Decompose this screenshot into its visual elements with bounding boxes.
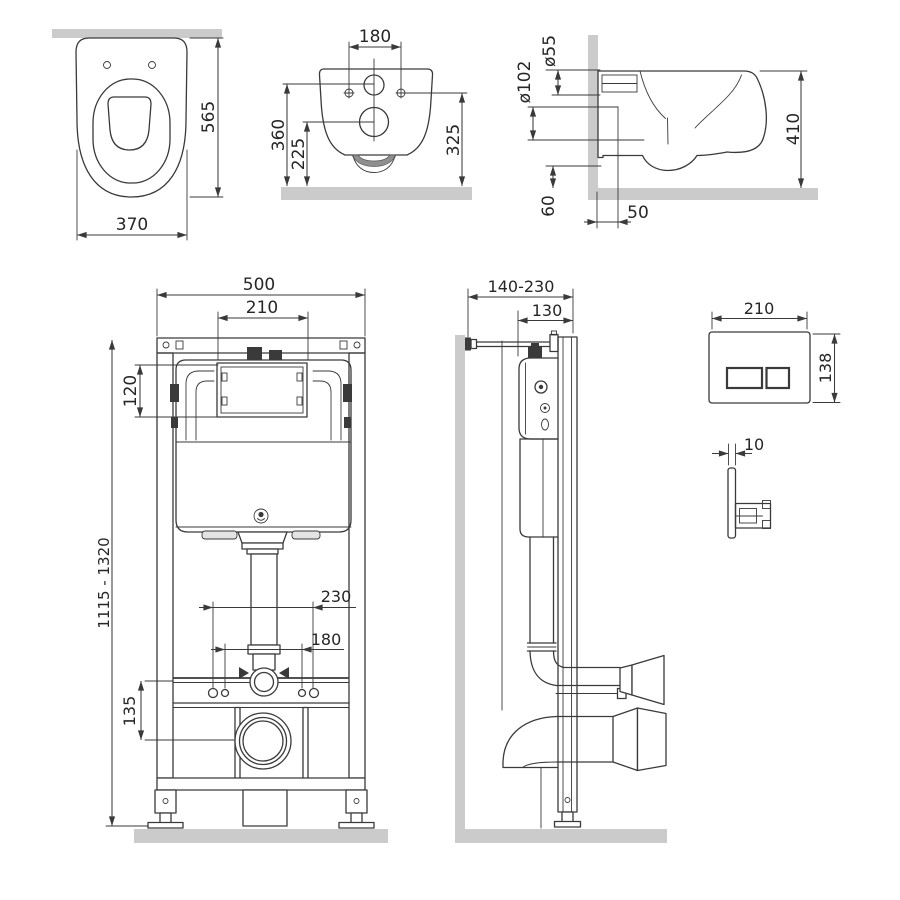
dim-frame-width: 500 [243, 275, 275, 295]
dim-toilet-width: 370 [116, 215, 148, 235]
drain-duct [243, 790, 287, 826]
flush-plate-side-view: 10 [712, 435, 771, 538]
access-window [217, 363, 307, 417]
anchor-bolt-hole [310, 689, 319, 698]
toilet-seat-ring [93, 79, 170, 183]
frame-leg [155, 790, 176, 813]
toilet-bottom-outline [319, 69, 432, 155]
seat-bolt-hole [104, 62, 111, 69]
dim-bolt-spacing: 180 [359, 27, 391, 47]
flush-valve-knob [269, 350, 282, 360]
seat-bolt-hole [149, 62, 156, 69]
flush-connector-cone [620, 665, 632, 695]
flush-plate-front-view: 210 138 [709, 299, 840, 403]
dim-outlet-center: 225 [289, 138, 309, 170]
toilet-side-view: ø55 ø102 410 60 50 [515, 35, 818, 228]
bowl-inner-curve [640, 71, 666, 119]
cistern-profile [519, 358, 558, 439]
floor-band [134, 829, 388, 843]
dim-window-height: 120 [121, 375, 141, 407]
dim-toilet-depth: 410 [784, 113, 804, 145]
filling-valve-knob [247, 347, 262, 360]
dim-plate-thickness: 10 [744, 435, 764, 454]
dim-wall-offset-range: 140-230 [488, 277, 555, 296]
valve-knob [528, 347, 542, 358]
drawing-canvas: 565 370 180 360 225 325 [0, 0, 900, 900]
dim-underside-height: 60 [539, 195, 559, 217]
frame-side-view: 140-230 130 [455, 277, 667, 843]
toilet-top-view: 565 370 [52, 29, 223, 240]
wall-band [588, 35, 598, 188]
frame-rail-profile [558, 337, 577, 812]
dim-bolt-height: 325 [444, 124, 464, 156]
wall-band [52, 29, 222, 38]
dim-inlet-diameter: ø55 [540, 35, 560, 67]
side-bracket [343, 384, 352, 402]
outlet-spigot-band [352, 155, 396, 167]
frame-bottom-bar [157, 778, 365, 790]
frame-front-view: 500 210 120 1115 - 1320 230 180 135 [95, 275, 388, 843]
hanger-hole [354, 342, 360, 348]
plate-profile [728, 468, 736, 538]
dim-toilet-height: 565 [199, 101, 219, 133]
dim-plate-width: 210 [744, 299, 775, 318]
anchor-bolt-hole [209, 689, 218, 698]
dim-outlet-to-wall: 50 [627, 203, 649, 223]
flush-bend-funnel [238, 532, 287, 543]
anchor-bolt-hole [222, 690, 229, 697]
floor-band [281, 187, 472, 200]
hanger-hole [163, 342, 169, 348]
waste-elbow [503, 717, 557, 768]
frame-leg [346, 790, 367, 813]
bowl-inner-curve [695, 75, 742, 128]
technical-drawing-sheet: 565 370 180 360 225 325 [0, 0, 900, 900]
anchor-bolt-hole [299, 690, 306, 697]
dim-outlet-drop: 135 [120, 696, 139, 727]
dim-anchor-spacing-inner: 180 [311, 630, 342, 649]
dim-window-width: 210 [246, 298, 278, 318]
toilet-bottom-view: 180 360 225 325 [269, 27, 472, 200]
toilet-bowl-opening [108, 97, 151, 150]
tank-lower-profile [520, 439, 558, 537]
floor-band [588, 188, 818, 200]
flush-button-large [727, 368, 762, 388]
dim-frame-depth: 130 [532, 301, 563, 320]
wall-band [455, 335, 465, 829]
flush-pipe [251, 554, 277, 645]
wall-anchor [465, 338, 471, 351]
dim-anchor-spacing-outer: 230 [321, 587, 352, 606]
side-bracket [170, 384, 179, 402]
dim-inlet-center: 360 [269, 119, 289, 151]
floor-band [455, 829, 667, 843]
waste-connector-cone [613, 708, 638, 771]
dim-frame-height-range: 1115 - 1320 [95, 537, 113, 628]
cistern-outline [176, 360, 351, 532]
dim-plate-height: 138 [816, 353, 835, 384]
toilet-side-outline [598, 71, 766, 171]
dim-outlet-diameter: ø102 [515, 61, 535, 104]
flush-button-small [767, 368, 790, 388]
